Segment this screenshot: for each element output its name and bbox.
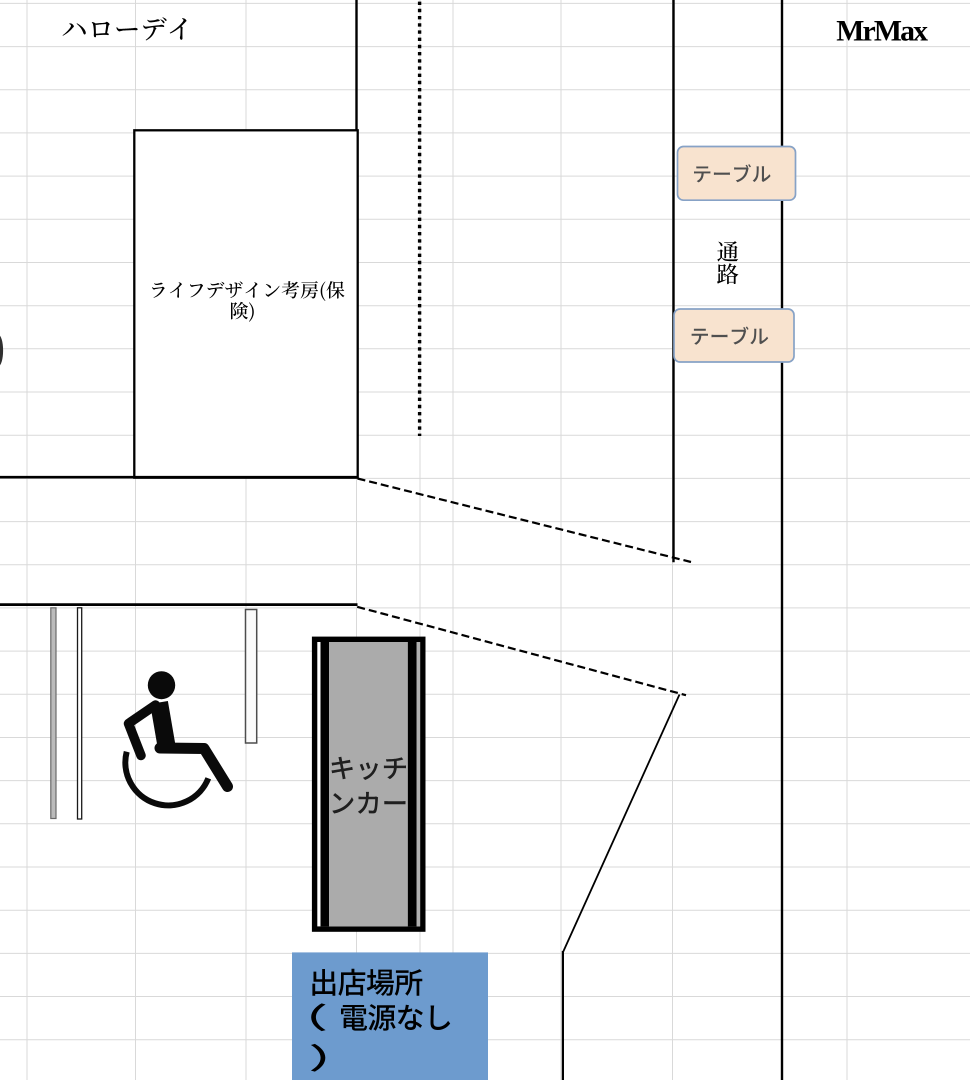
svg-text:MrMax: MrMax (836, 15, 928, 48)
